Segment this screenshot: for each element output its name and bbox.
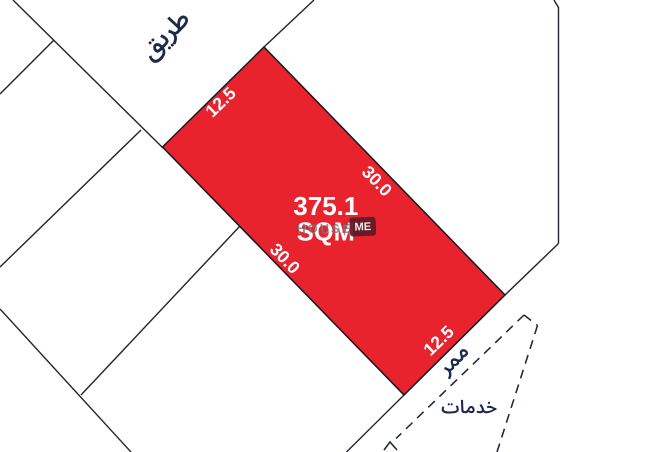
svg-text:ME: ME — [354, 221, 372, 234]
svg-text:HOUSE: HOUSE — [297, 221, 353, 236]
svg-text:375.1: 375.1 — [293, 191, 358, 221]
